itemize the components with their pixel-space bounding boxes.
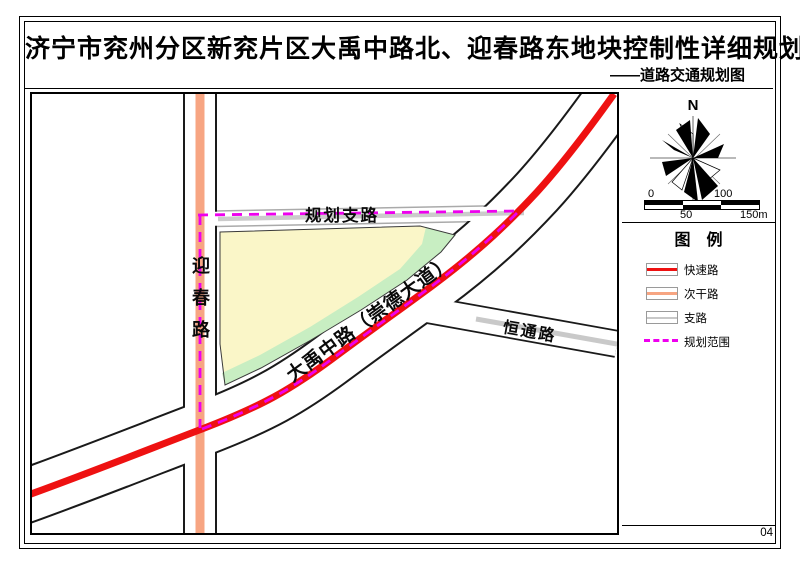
expressway-line bbox=[647, 268, 677, 271]
legend-item-planning-boundary: 规划范围 bbox=[622, 329, 775, 353]
map-sidebar: N 0 100 50 150m 图 例 bbox=[622, 92, 775, 541]
page-subtitle: ——道路交通规划图 bbox=[610, 64, 745, 85]
legend-item-secondary-road: 次干路 bbox=[622, 281, 775, 305]
legend-divider bbox=[622, 222, 775, 223]
road-label-planned-branch: 规划支路 bbox=[305, 202, 379, 226]
legend-label: 支路 bbox=[684, 310, 707, 326]
north-label: N bbox=[688, 97, 699, 114]
scale-tick-100: 100 bbox=[714, 188, 732, 200]
map-panel: 规划支路 迎春路 大禹中路（崇德大道） 恒通路 bbox=[30, 92, 619, 535]
expressway-swatch bbox=[646, 263, 678, 276]
secondary-road-line bbox=[647, 292, 677, 295]
page-title: 济宁市兖州分区新兖片区大禹中路北、迎春路东地块控制性详细规划 bbox=[25, 29, 773, 65]
road-label-yingchun: 迎春路 bbox=[187, 256, 213, 352]
legend-label: 次干路 bbox=[684, 286, 719, 302]
scale-tick-50: 50 bbox=[680, 209, 692, 221]
legend: 快速路 次干路 支路 规划范围 bbox=[622, 257, 775, 353]
sheet-number: 04 bbox=[760, 527, 773, 539]
branch-road-line bbox=[647, 317, 677, 319]
legend-item-expressway: 快速路 bbox=[622, 257, 775, 281]
legend-item-branch-road: 支路 bbox=[622, 305, 775, 329]
scale-tick-150: 150m bbox=[740, 209, 768, 221]
planning-boundary-dash bbox=[644, 339, 678, 342]
sheet-number-strip: 04 bbox=[622, 525, 775, 541]
plan-sheet: 济宁市兖州分区新兖片区大禹中路北、迎春路东地块控制性详细规划 ——道路交通规划图 bbox=[0, 0, 800, 566]
title-bar: 济宁市兖州分区新兖片区大禹中路北、迎春路东地块控制性详细规划 ——道路交通规划图 bbox=[25, 22, 773, 89]
road-map-canvas bbox=[32, 94, 617, 533]
legend-label: 快速路 bbox=[684, 262, 719, 278]
secondary-road-swatch bbox=[646, 287, 678, 300]
legend-label: 规划范围 bbox=[684, 334, 730, 350]
branch-road-swatch bbox=[646, 311, 678, 324]
scale-tick-0: 0 bbox=[648, 188, 654, 200]
legend-title: 图 例 bbox=[622, 226, 775, 250]
scale-bar: 0 100 50 150m bbox=[634, 188, 766, 224]
scale-segment bbox=[645, 205, 683, 209]
